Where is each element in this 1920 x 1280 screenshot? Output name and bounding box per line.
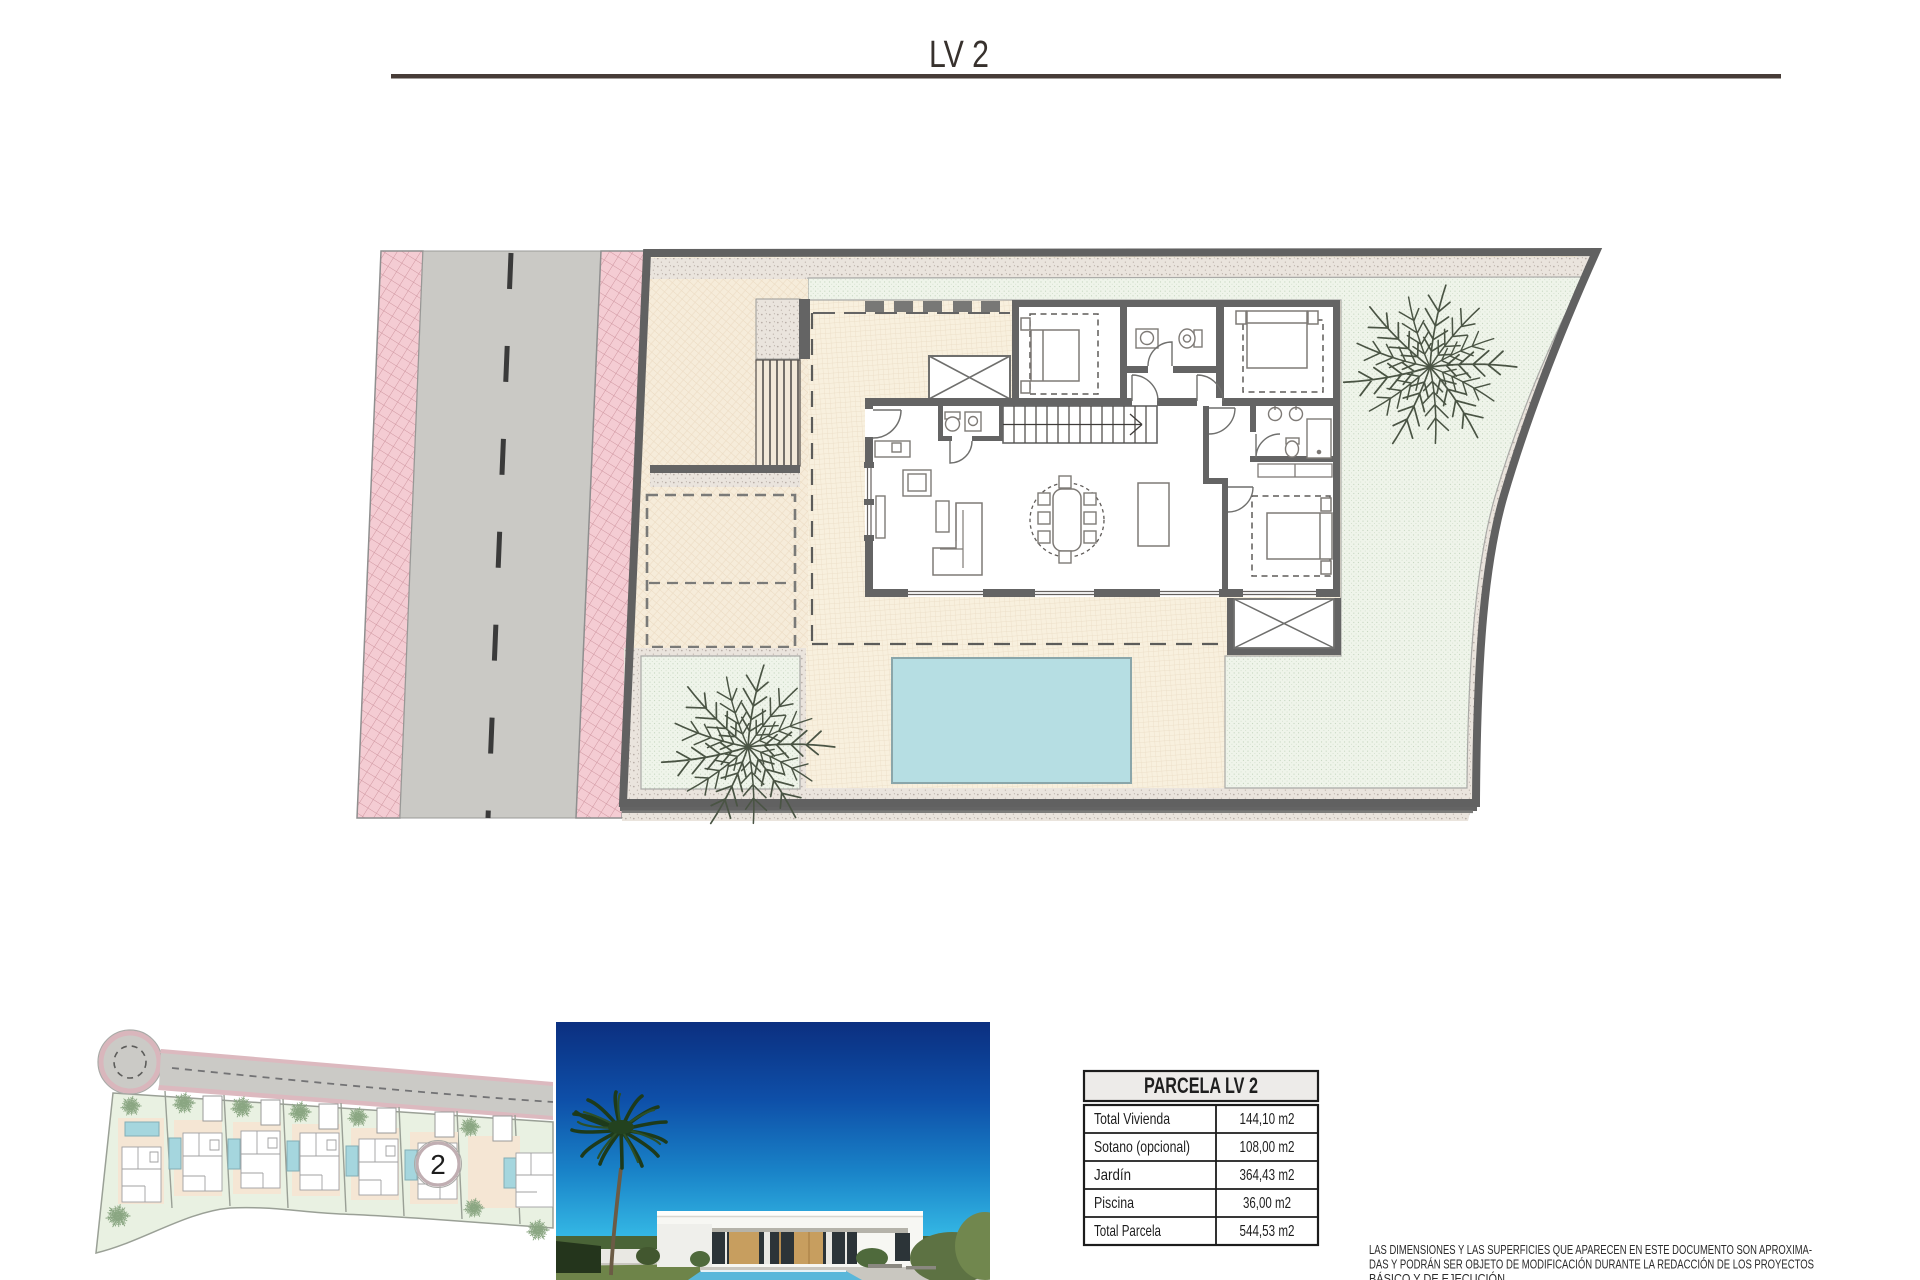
svg-text:LV 2: LV 2 [929, 34, 989, 76]
svg-text:Sotano (opcional): Sotano (opcional) [1094, 1139, 1190, 1156]
svg-text:PARCELA LV 2: PARCELA LV 2 [1144, 1073, 1258, 1098]
svg-text:Total Parcela: Total Parcela [1094, 1223, 1161, 1240]
svg-text:Jardín: Jardín [1094, 1167, 1131, 1184]
svg-text:108,00 m2: 108,00 m2 [1240, 1139, 1295, 1156]
svg-text:Piscina: Piscina [1094, 1195, 1134, 1212]
svg-text:144,10 m2: 144,10 m2 [1240, 1111, 1295, 1128]
svg-text:BÁSICO Y DE EJECUCIÓN: BÁSICO Y DE EJECUCIÓN [1369, 1271, 1505, 1280]
svg-text:36,00 m2: 36,00 m2 [1243, 1195, 1291, 1212]
svg-text:2: 2 [430, 1149, 446, 1180]
svg-text:DAS Y PODRÁN SER OBJETO DE MOD: DAS Y PODRÁN SER OBJETO DE MODIFICACIÓN … [1369, 1257, 1814, 1272]
svg-text:LAS DIMENSIONES Y LAS SUPERFIC: LAS DIMENSIONES Y LAS SUPERFICIES QUE AP… [1369, 1243, 1812, 1257]
svg-text:Total Vivienda: Total Vivienda [1094, 1111, 1170, 1128]
svg-text:364,43 m2: 364,43 m2 [1240, 1167, 1295, 1184]
svg-text:544,53 m2: 544,53 m2 [1240, 1223, 1295, 1240]
